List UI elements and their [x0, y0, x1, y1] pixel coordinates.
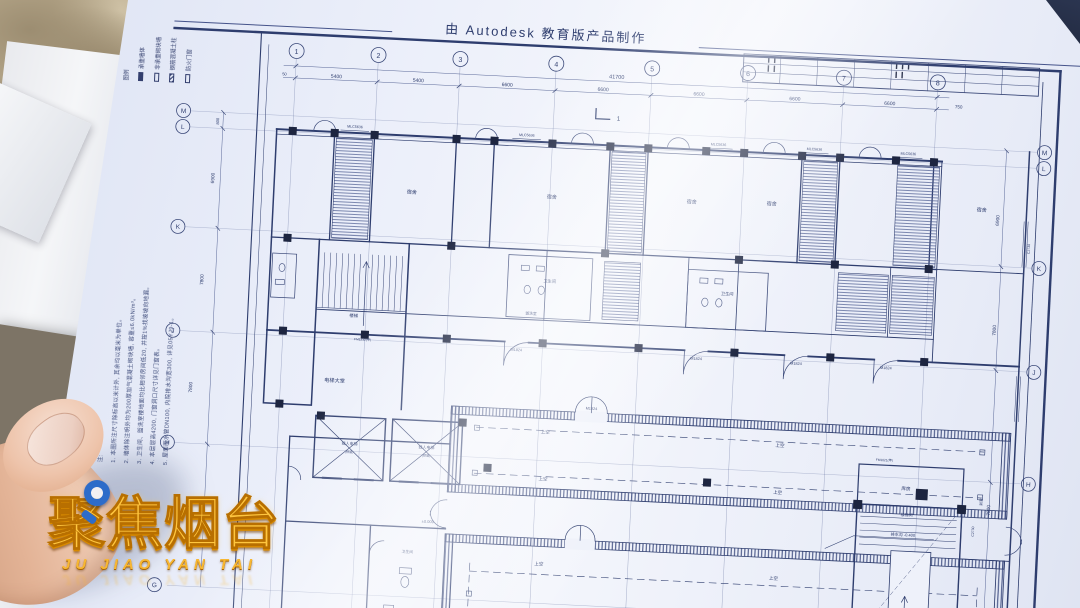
photo-frame: 由 Autodesk 教育版产品制作 — [0, 0, 1080, 608]
thumb — [0, 391, 160, 608]
